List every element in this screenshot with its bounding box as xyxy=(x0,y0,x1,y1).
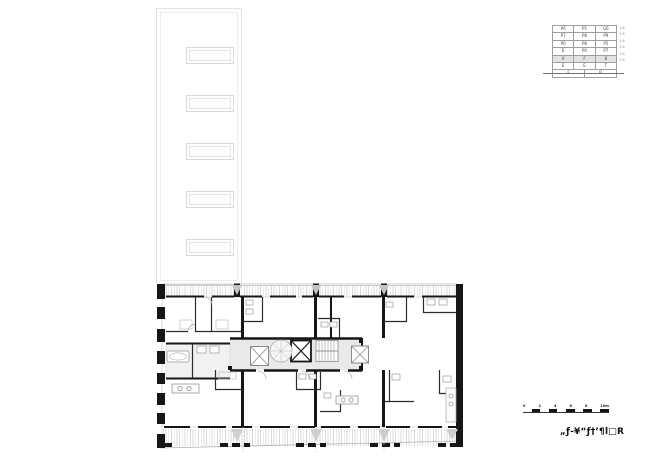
scale-label: 10m xyxy=(600,404,609,408)
elevator-shaft-left xyxy=(251,347,269,366)
stack-cell: G6 xyxy=(596,26,616,32)
scale-bar: 0 2 4 6 8 10m xyxy=(523,404,609,413)
drawing-title: „ƒ-¥“ƒ†’¶l□R xyxy=(548,427,636,437)
stack-row: P0 P8 P5 xyxy=(553,41,616,48)
scale-segment xyxy=(532,409,541,412)
scale-segment xyxy=(600,409,609,412)
scale-segment xyxy=(583,409,592,412)
stack-cell: 0 xyxy=(553,56,574,62)
stack-cell: E xyxy=(553,48,574,54)
stack-cell: P5 xyxy=(596,41,616,47)
bathtub xyxy=(167,351,189,362)
stack-note: 1.6 xyxy=(619,57,625,63)
scale-label: 8 xyxy=(585,404,587,408)
scale-segment xyxy=(540,409,549,412)
stack-cell: P8 xyxy=(574,33,595,39)
stack-cell: P5 xyxy=(574,26,595,32)
stack-row-notes: 1.6 1.6 1.6 1.6 1.6 1.6 xyxy=(619,25,625,63)
stack-row: P6 P5 G6 xyxy=(553,26,616,33)
spiral-stair xyxy=(270,340,292,362)
scale-segment xyxy=(549,409,558,412)
scale-label: 6 xyxy=(569,404,571,408)
stack-cell: P0 xyxy=(553,41,574,47)
stack-cell: T xyxy=(596,63,616,69)
right-exterior-wall xyxy=(456,284,463,447)
stack-cell: P9 xyxy=(596,33,616,39)
scale-label: 0 xyxy=(523,404,525,408)
stack-cell: P7 xyxy=(553,33,574,39)
stack-cell: P8 xyxy=(574,41,595,47)
stack-row: E E T xyxy=(553,63,616,70)
stack-ground-line xyxy=(543,73,624,75)
drawing-sheet: P6 P5 G6 P7 P8 P9 P0 P8 P5 E P0 P7 0 F xyxy=(0,0,650,459)
scale-segments xyxy=(523,409,609,413)
stack-cell: E xyxy=(553,63,574,69)
bottom-facade-wall xyxy=(163,427,459,452)
scale-segment xyxy=(592,409,601,412)
left-pier-wall xyxy=(157,284,165,448)
stack-cell: P6 xyxy=(553,26,574,32)
stack-cell: E xyxy=(574,63,595,69)
scale-segment xyxy=(575,409,584,412)
floor-stack-table: P6 P5 G6 P7 P8 P9 P0 P8 P5 E P0 P7 0 F xyxy=(552,25,650,78)
stack-cell: F xyxy=(574,56,595,62)
stack-row: E P0 P7 xyxy=(553,48,616,55)
stack-cell: 8 xyxy=(596,56,616,62)
top-facade-wall xyxy=(166,284,456,298)
scale-label: 4 xyxy=(554,404,556,408)
elevator-shaft-center xyxy=(291,341,311,362)
elevator-shaft-right xyxy=(352,346,369,363)
scale-segment xyxy=(523,409,532,412)
floor-stack-grid: P6 P5 G6 P7 P8 P9 P0 P8 P5 E P0 P7 0 F xyxy=(552,25,617,78)
stack-cell: P0 xyxy=(574,48,595,54)
straight-stair xyxy=(316,341,338,362)
scale-labels: 0 2 4 6 8 10m xyxy=(523,404,609,408)
stack-cell: P7 xyxy=(596,48,616,54)
scale-segment xyxy=(566,409,575,412)
scale-label: 2 xyxy=(538,404,540,408)
stack-row-highlighted: 0 F 8 xyxy=(553,56,616,63)
scale-segment xyxy=(557,409,566,412)
stack-row: P7 P8 P9 xyxy=(553,33,616,40)
